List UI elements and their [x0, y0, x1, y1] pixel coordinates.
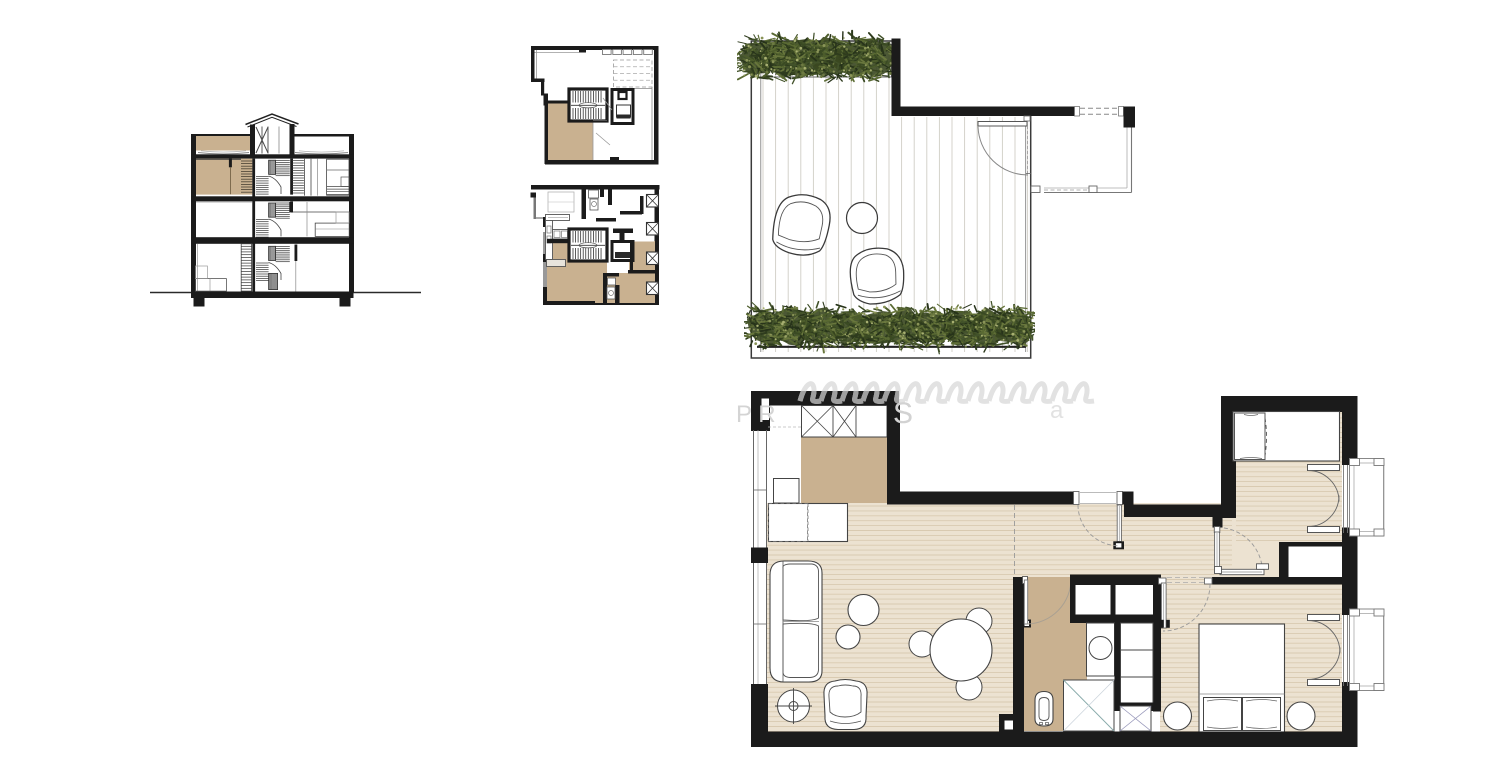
svg-text:P R: P R — [736, 401, 776, 428]
svg-text:a: a — [1050, 397, 1064, 424]
svg-text:S: S — [893, 397, 913, 430]
